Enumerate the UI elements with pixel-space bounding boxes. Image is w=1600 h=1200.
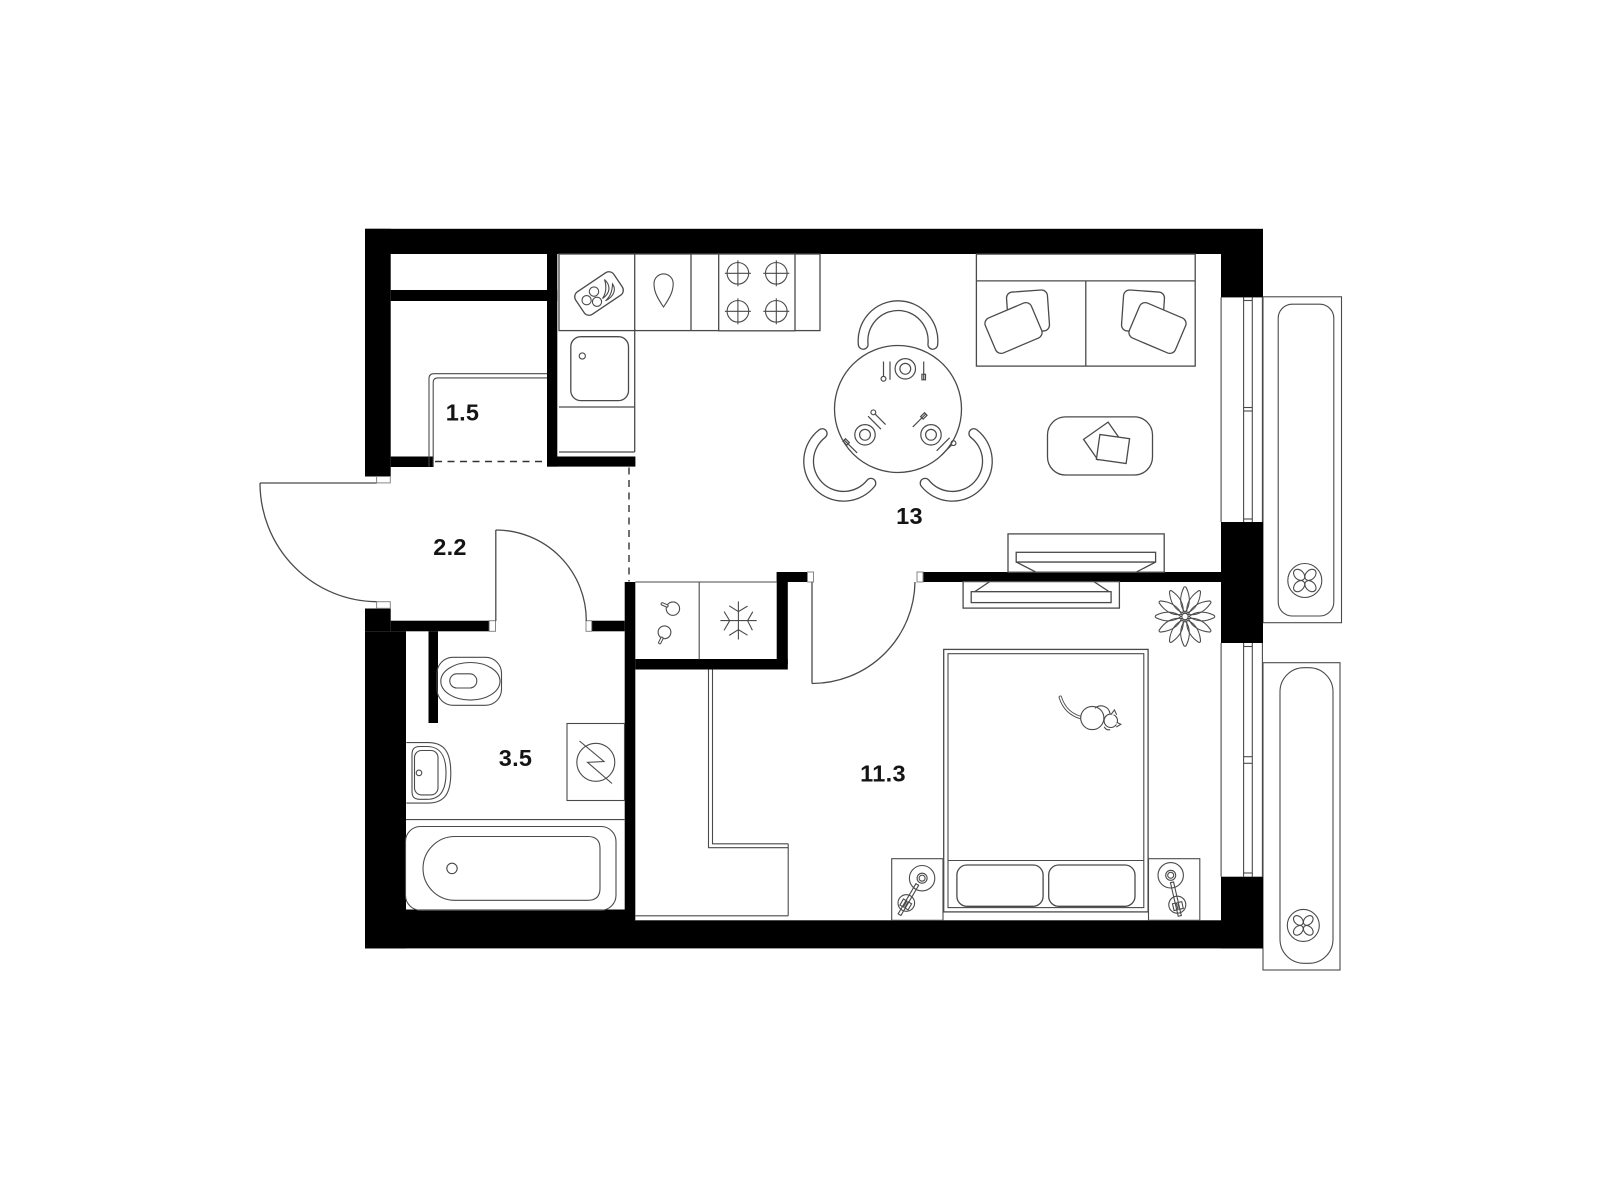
svg-text:13: 13: [896, 503, 923, 529]
svg-text:1.5: 1.5: [446, 400, 480, 426]
svg-text:2.2: 2.2: [433, 534, 467, 560]
svg-text:11.3: 11.3: [860, 761, 906, 787]
svg-text:3.5: 3.5: [499, 745, 533, 771]
